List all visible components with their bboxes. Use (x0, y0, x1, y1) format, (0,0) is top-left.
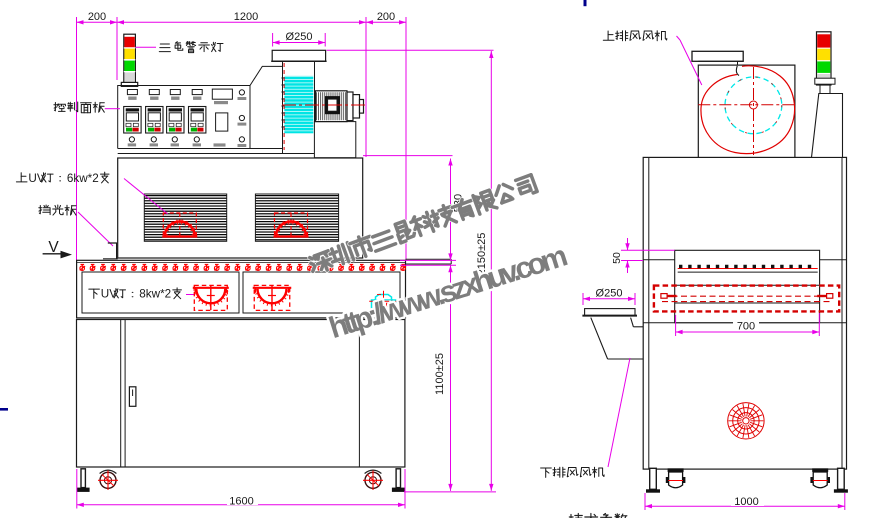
svg-text:200: 200 (377, 11, 395, 23)
svg-text:UV: UV (28, 172, 44, 185)
svg-text:6kw*2: 6kw*2 (67, 172, 99, 185)
svg-text:Ø250: Ø250 (596, 288, 623, 300)
svg-text:200: 200 (88, 11, 106, 23)
svg-text:1000: 1000 (734, 496, 758, 508)
svg-text:50: 50 (611, 252, 623, 264)
svg-text:Ø250: Ø250 (286, 31, 313, 43)
svg-text:8kw*2: 8kw*2 (139, 288, 171, 301)
svg-text:UV: UV (101, 288, 117, 301)
svg-text:1600: 1600 (229, 495, 253, 507)
svg-text:1200: 1200 (234, 11, 258, 23)
svg-text:1100±25: 1100±25 (434, 353, 446, 395)
svg-text:700: 700 (737, 321, 755, 333)
